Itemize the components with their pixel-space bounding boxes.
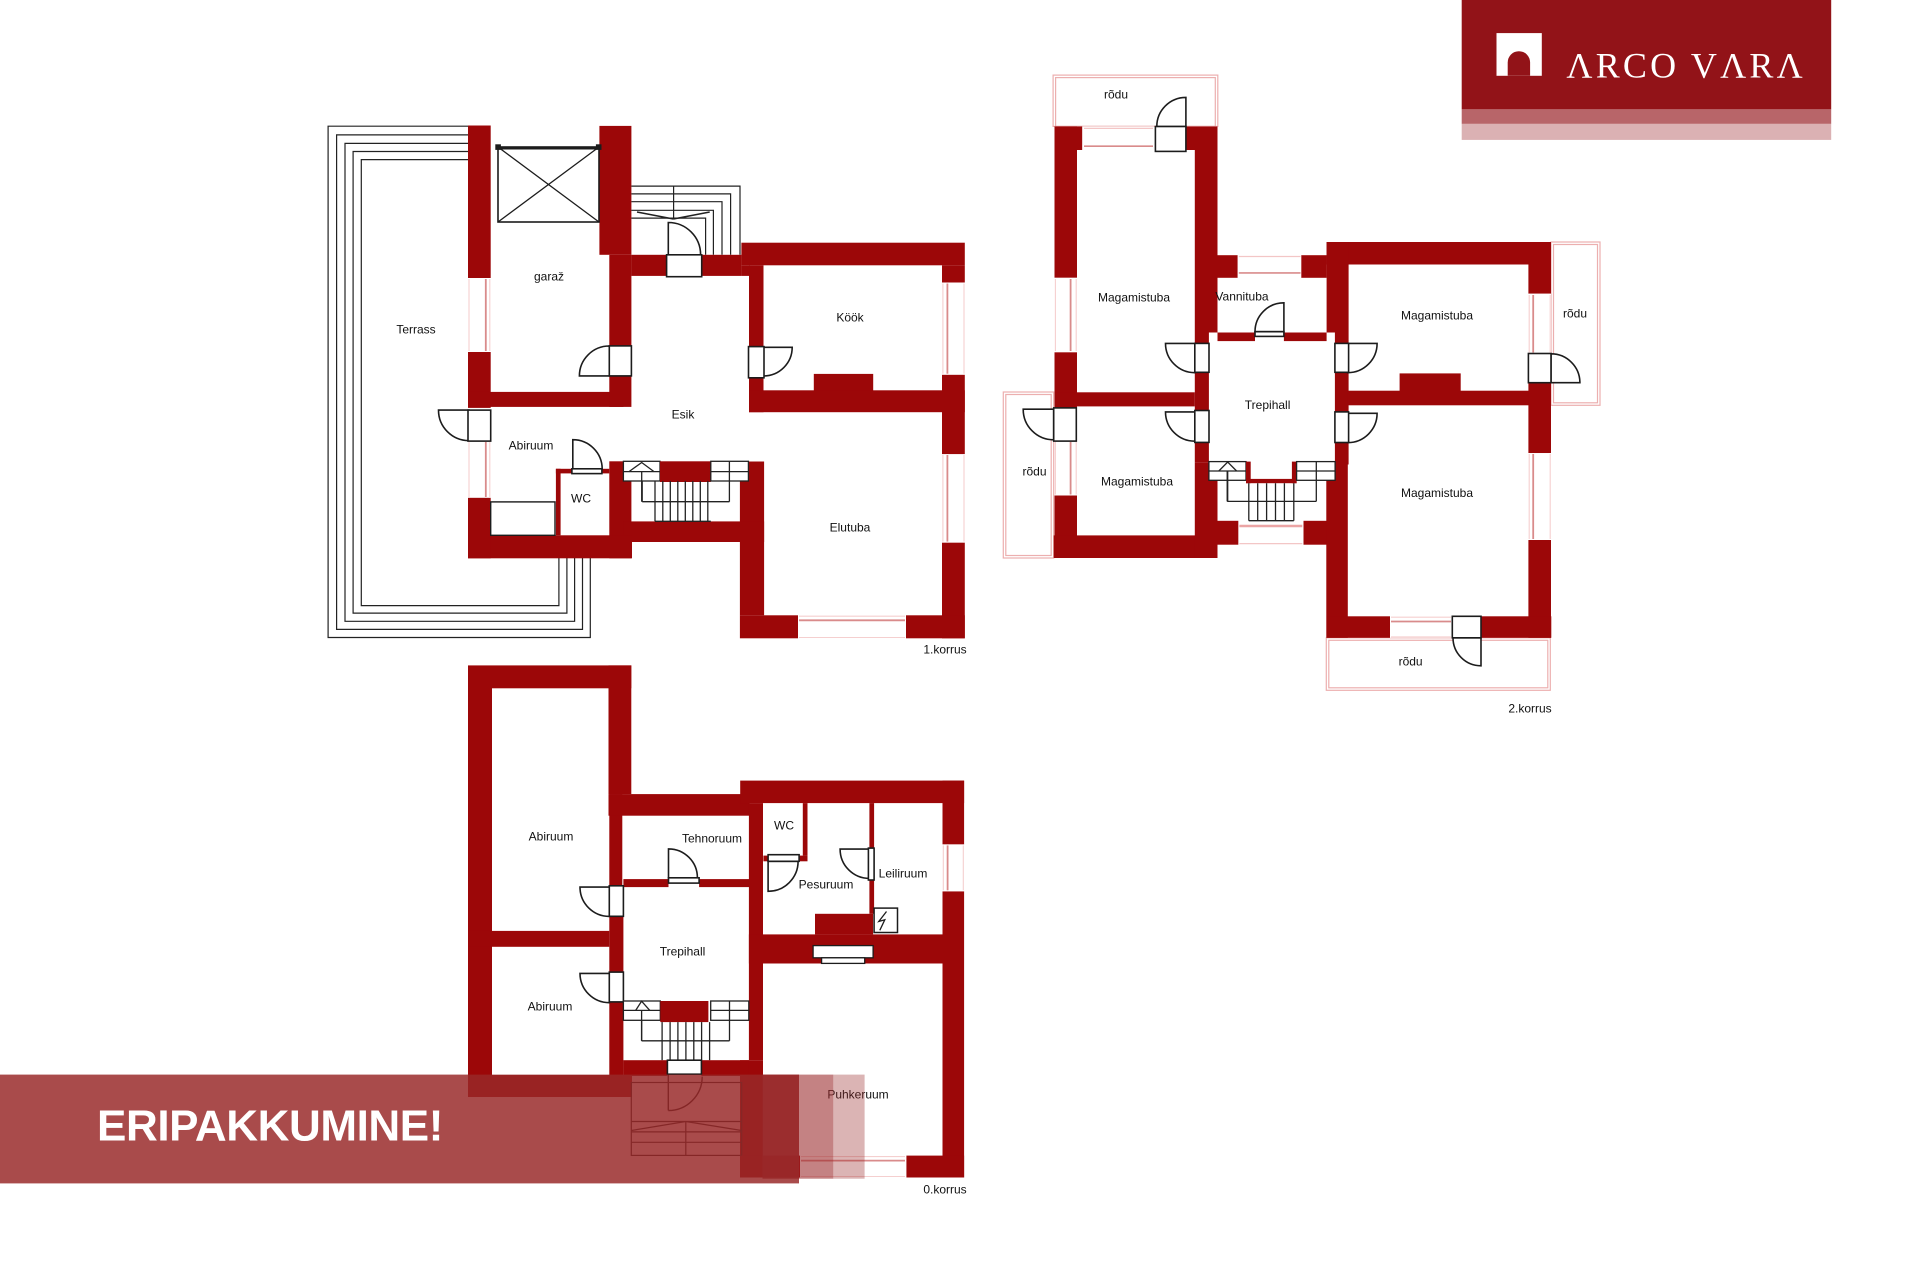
- svg-text:Leiliruum: Leiliruum: [879, 867, 928, 881]
- svg-text:Magamistuba: Magamistuba: [1401, 309, 1473, 323]
- svg-text:Abiruum: Abiruum: [528, 1000, 573, 1014]
- svg-text:rõdu: rõdu: [1022, 465, 1046, 479]
- svg-text:Esik: Esik: [672, 408, 696, 422]
- svg-text:rõdu: rõdu: [1399, 655, 1423, 669]
- svg-text:Elutuba: Elutuba: [830, 521, 871, 535]
- svg-text:Magamistuba: Magamistuba: [1098, 291, 1170, 305]
- svg-text:rõdu: rõdu: [1104, 88, 1128, 102]
- svg-text:1.korrus: 1.korrus: [923, 643, 966, 657]
- svg-text:Köök: Köök: [836, 311, 864, 325]
- svg-text:Terrass: Terrass: [396, 323, 435, 337]
- svg-text:ERIPAKKUMINE!: ERIPAKKUMINE!: [97, 1102, 443, 1151]
- svg-text:ΛRCO VΛRΛ: ΛRCO VΛRΛ: [1566, 46, 1806, 86]
- svg-text:Trepihall: Trepihall: [660, 945, 706, 959]
- svg-text:Trepihall: Trepihall: [1245, 398, 1291, 412]
- svg-text:2.korrus: 2.korrus: [1508, 702, 1551, 716]
- svg-text:WC: WC: [571, 492, 591, 506]
- svg-text:rõdu: rõdu: [1563, 307, 1587, 321]
- svg-text:Magamistuba: Magamistuba: [1401, 486, 1473, 500]
- svg-text:garaž: garaž: [534, 270, 564, 284]
- svg-text:Tehnoruum: Tehnoruum: [682, 832, 742, 846]
- svg-text:Vannituba: Vannituba: [1215, 290, 1268, 304]
- svg-text:Abiruum: Abiruum: [509, 439, 554, 453]
- svg-text:Abiruum: Abiruum: [529, 830, 574, 844]
- svg-text:WC: WC: [774, 819, 794, 833]
- svg-text:Pesuruum: Pesuruum: [799, 878, 854, 892]
- svg-text:Magamistuba: Magamistuba: [1101, 475, 1173, 489]
- svg-text:0.korrus: 0.korrus: [923, 1183, 966, 1197]
